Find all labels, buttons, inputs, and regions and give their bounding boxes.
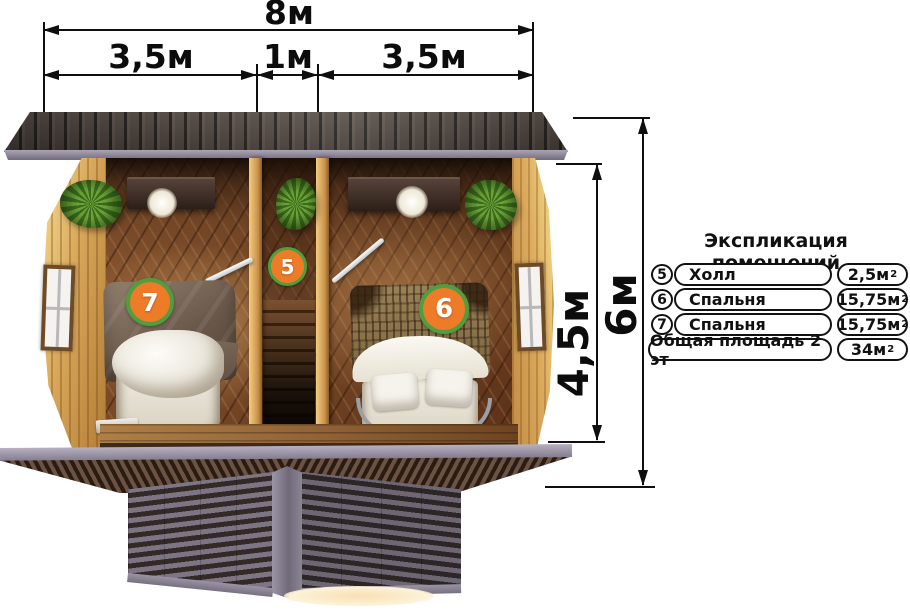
- extension-line-left: [43, 22, 45, 115]
- legend-total-label: Общая площадь 2 эт: [648, 338, 832, 361]
- dim-outer-height-conn-bottom: [545, 486, 655, 488]
- area-value: 2,5м: [848, 265, 889, 284]
- roof-overhang: [4, 112, 568, 152]
- extension-line-mid-left: [256, 64, 258, 118]
- window-right: [514, 263, 546, 352]
- dim-mid-span-label: 1м: [261, 40, 315, 74]
- arrowhead-left-icon: [257, 70, 273, 80]
- dim-left-span-line: [44, 74, 256, 76]
- arrowhead-right-icon: [518, 70, 534, 80]
- bed7-pillows: [112, 330, 224, 398]
- plant-room7: [60, 180, 122, 228]
- legend-row-area: 15,75м2: [837, 288, 908, 311]
- dim-right-span-label: 3,5м: [377, 40, 471, 74]
- legend-row-number: 5: [651, 264, 673, 285]
- area-value: 15,75м: [837, 290, 901, 309]
- arrowhead-right-icon: [302, 70, 318, 80]
- area-value: 15,75м: [837, 315, 901, 334]
- dim-total-width-label: 8м: [253, 0, 325, 30]
- lamp-glow-left: [147, 188, 177, 218]
- partition-wall-left: [249, 158, 262, 450]
- floorplan-canvas: 8м 3,5м 1м 3,5м: [0, 0, 910, 614]
- room-badge-hall: 5: [268, 247, 307, 286]
- dim-outer-height-label: 6м: [600, 268, 644, 342]
- legend-row-name: Холл: [674, 263, 832, 286]
- arrowhead-up-icon: [638, 118, 648, 134]
- room-legend: Экспликация помещений 5 Холл 2,5м2 6 Спа…: [645, 228, 910, 364]
- legend-row-name: Спальня: [674, 288, 832, 311]
- legend-total-area: 34м2: [837, 338, 908, 361]
- room-badge-bedroom-right: 6: [419, 284, 469, 334]
- window-left: [41, 264, 76, 351]
- dim-total-width-line: [44, 29, 533, 31]
- legend-row-area: 2,5м2: [837, 263, 908, 286]
- staircase: [263, 300, 315, 432]
- dim-left-span-label: 3,5м: [105, 40, 197, 74]
- area-value: 34м: [851, 340, 886, 359]
- lamp-glow-right: [396, 186, 428, 218]
- arrowhead-right-icon: [241, 70, 257, 80]
- ground-shadow: [284, 586, 434, 606]
- first-floor-corner-post: [272, 466, 302, 598]
- dim-inner-height-label: 4,5м: [552, 253, 596, 433]
- arrowhead-left-icon: [43, 25, 59, 35]
- legend-row-area: 15,75м2: [837, 313, 908, 336]
- dim-right-span-line: [319, 74, 533, 76]
- arrowhead-up-icon: [592, 164, 602, 180]
- dim-mid-span-line: [258, 74, 317, 76]
- first-floor-wall-right: [301, 468, 461, 594]
- legend-row-number: 6: [651, 289, 673, 310]
- plant-room6: [465, 180, 517, 230]
- extension-line-right: [532, 22, 534, 115]
- partition-wall-right: [316, 158, 329, 450]
- dim-inner-height-conn-bottom: [548, 441, 605, 443]
- extension-line-mid-right: [317, 64, 319, 118]
- room-badge-bedroom-left: 7: [126, 278, 174, 326]
- arrowhead-down-icon: [638, 470, 648, 486]
- arrowhead-left-icon: [43, 70, 59, 80]
- arrowhead-left-icon: [318, 70, 334, 80]
